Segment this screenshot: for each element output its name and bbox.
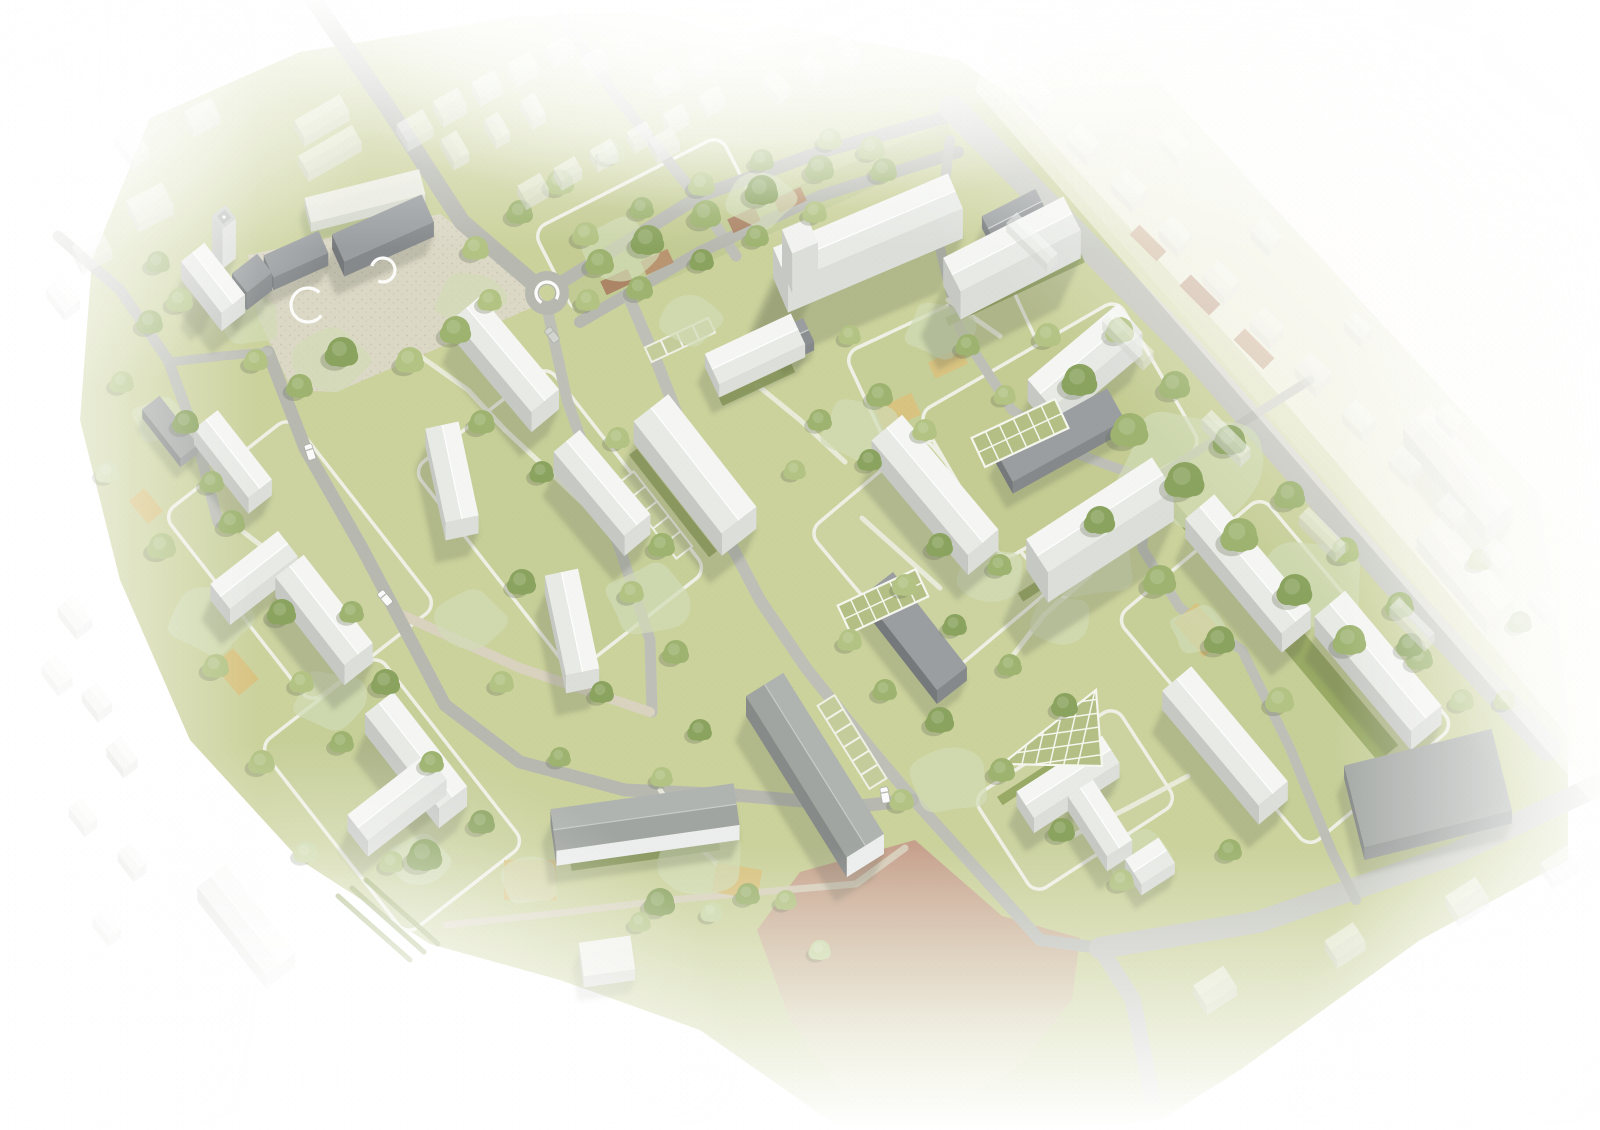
paper-grain <box>0 0 1600 1130</box>
masterplan-rendering <box>0 0 1600 1130</box>
aerial-masterplan-illustration <box>0 0 1600 1130</box>
